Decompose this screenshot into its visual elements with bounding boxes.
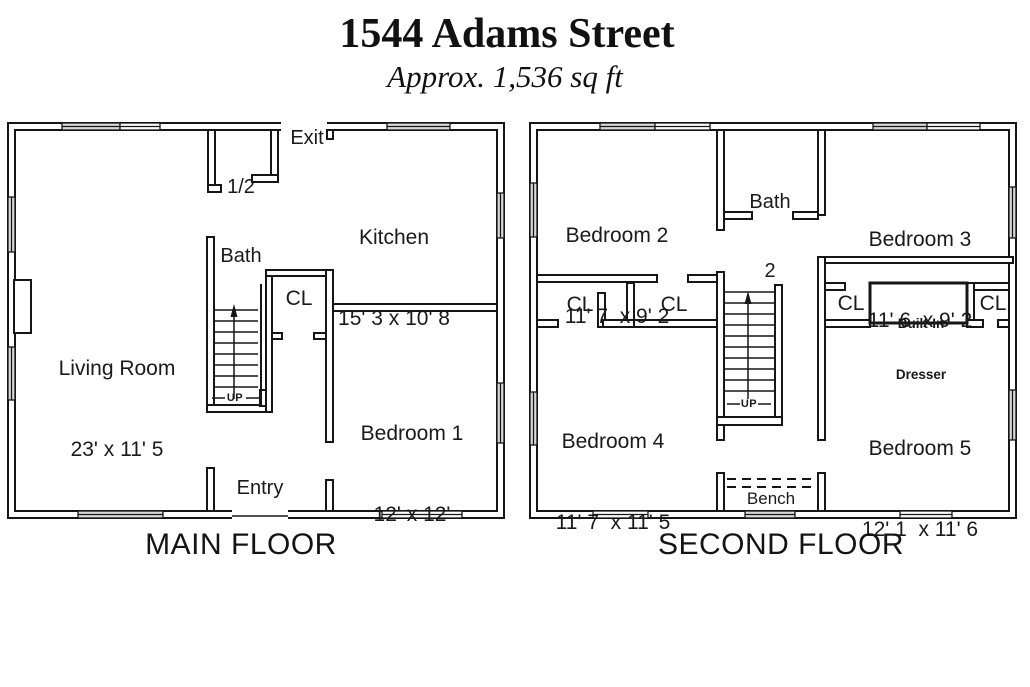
room-label-entry: Entry xyxy=(237,477,284,500)
room-label-bedroom1: Bedroom 1 12' x 12' xyxy=(361,366,464,582)
room-name: Bedroom 3 xyxy=(868,226,973,253)
room-dims: 15' 3 x 10' 8 xyxy=(338,305,450,332)
stairs-up-label-second: UP xyxy=(741,398,757,410)
stairs-up-label-main: UP xyxy=(227,392,243,404)
entry-door-opening xyxy=(232,508,288,520)
room-label-closet-main: CL xyxy=(286,287,313,310)
room-name: Bedroom 1 xyxy=(361,420,464,447)
room-label-bedroom5: Bedroom 5 12' 1 x 11' 6 xyxy=(862,381,978,597)
room-label-living-room: Living Room 23' x 11' 5 xyxy=(59,301,176,517)
room-name: Bedroom 2 xyxy=(565,222,670,249)
fireplace-bump xyxy=(14,280,31,333)
page-title: 1544 Adams Street xyxy=(339,12,674,56)
floorplan-page: 1544 Adams Street Approx. 1,536 sq ft 1/… xyxy=(0,0,1030,687)
room-label-closet-5b: CL xyxy=(980,292,1007,315)
room-label-closet-5a: CL xyxy=(838,292,865,315)
bench-dashed-outline xyxy=(727,479,816,487)
room-label-bedroom2: Bedroom 2 11' 7 x 9' 2 xyxy=(565,168,670,384)
room-name: Bedroom 5 xyxy=(862,435,978,462)
main-floor-caption: MAIN FLOOR xyxy=(145,529,337,561)
room-name: Kitchen xyxy=(338,224,450,251)
room-name: Bedroom 4 xyxy=(556,428,671,455)
room-label-kitchen: Kitchen 15' 3 x 10' 8 xyxy=(338,170,450,386)
bench-label: Bench xyxy=(747,489,795,508)
room-label-half-bath: 1/2 Bath xyxy=(220,130,261,314)
room-label-closet-2a: CL xyxy=(567,293,594,316)
room-name: Living Room xyxy=(59,355,176,382)
room-dims: 12' x 12' xyxy=(361,501,464,528)
room-dims: 23' x 11' 5 xyxy=(59,436,176,463)
page-subtitle: Approx. 1,536 sq ft xyxy=(387,60,623,94)
room-label-exit: Exit xyxy=(290,127,323,150)
room-label-bedroom4: Bedroom 4 11' 7 x 11' 5 xyxy=(556,374,671,590)
second-floor-caption: SECOND FLOOR xyxy=(658,529,904,561)
room-label-closet-2b: CL xyxy=(661,293,688,316)
room-dims: 11' 7 x 11' 5 xyxy=(556,509,671,536)
room-label-bath2: Bath 2 xyxy=(749,145,790,329)
